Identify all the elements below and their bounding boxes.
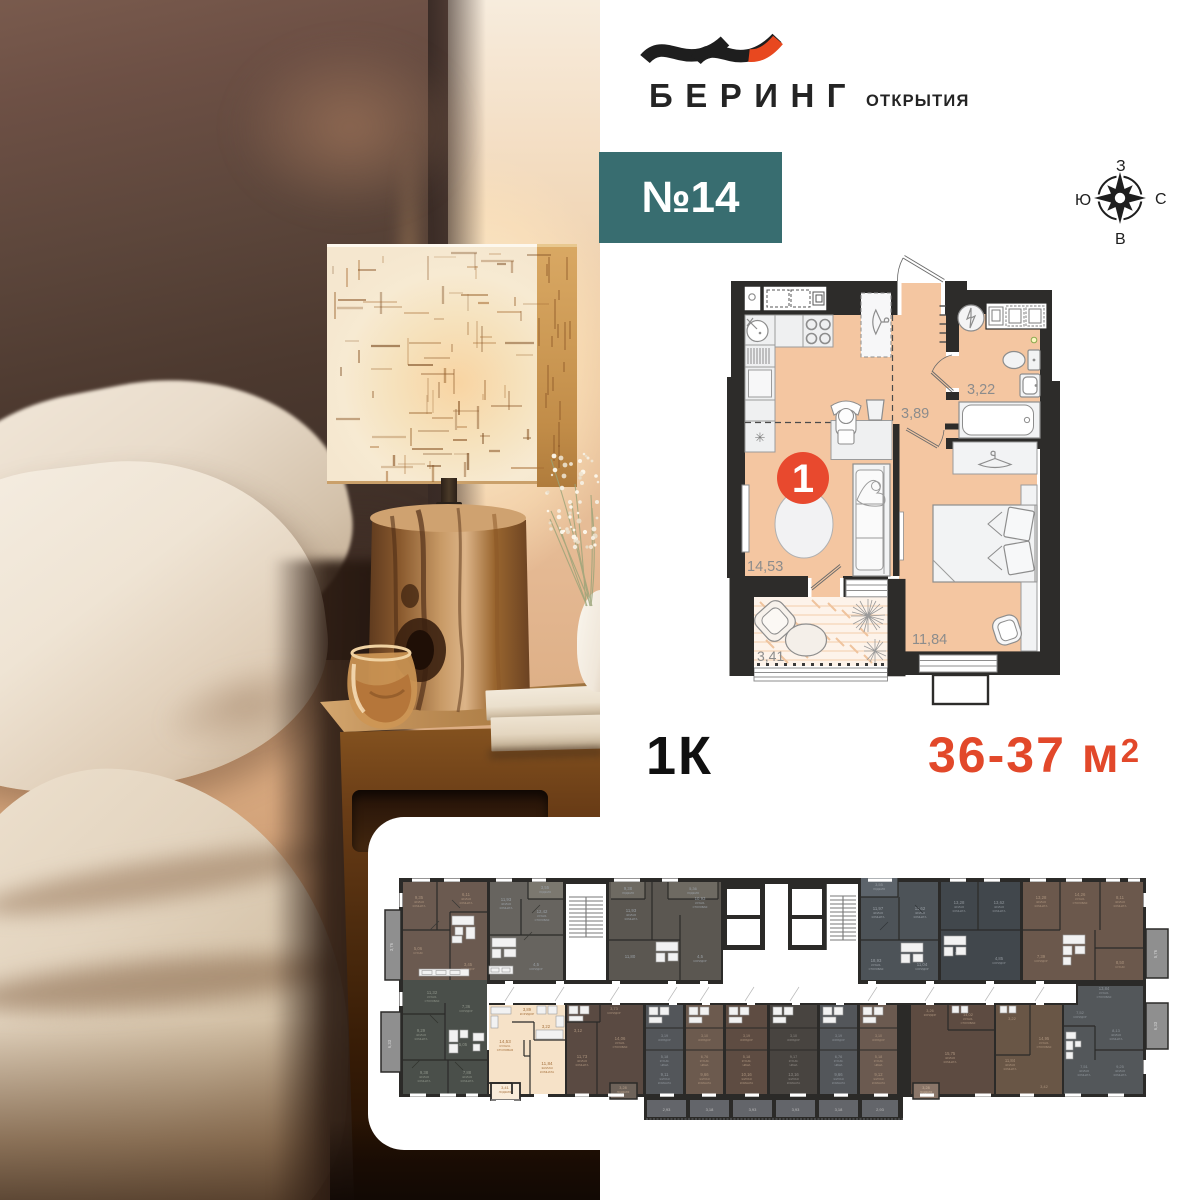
svg-text:КОРИДОР: КОРИДОР — [872, 1038, 885, 1042]
svg-text:КОМНАТА: КОМНАТА — [413, 904, 426, 908]
svg-text:5,06: 5,06 — [414, 946, 423, 951]
svg-text:НИША: НИША — [701, 1063, 709, 1067]
svg-text:ЖИЛАЯ: ЖИЛАЯ — [577, 1059, 587, 1063]
svg-text:5,76: 5,76 — [1153, 949, 1158, 958]
svg-text:14,26: 14,26 — [1075, 892, 1086, 897]
svg-text:ЖИЛАЯ: ЖИЛАЯ — [954, 905, 964, 909]
svg-text:ЖИЛАЯ: ЖИЛАЯ — [873, 911, 883, 915]
svg-text:5,05: 5,05 — [459, 1042, 468, 1047]
svg-text:КОМНАТА: КОМНАТА — [461, 1079, 474, 1083]
svg-text:14,06: 14,06 — [615, 1036, 626, 1041]
svg-text:КУХНЯ-: КУХНЯ- — [537, 914, 547, 918]
svg-text:КОМНАТА: КОМНАТА — [418, 1079, 431, 1083]
svg-text:9,29: 9,29 — [417, 1028, 426, 1033]
svg-text:КУХНЯ-: КУХНЯ- — [660, 1059, 670, 1063]
svg-text:СТОЛОВАЯ: СТОЛОВАЯ — [961, 1021, 976, 1025]
svg-text:12,42: 12,42 — [537, 909, 548, 914]
svg-text:КОМНАТА: КОМНАТА — [953, 909, 966, 913]
svg-text:4,5: 4,5 — [533, 962, 540, 967]
svg-text:КОМНАТА: КОМНАТА — [1035, 904, 1048, 908]
svg-text:КУХНЯ-: КУХНЯ- — [963, 1017, 973, 1021]
svg-text:13,28: 13,28 — [954, 900, 965, 905]
svg-text:13,28: 13,28 — [1036, 895, 1047, 900]
svg-text:КОРИДОР: КОРИДОР — [459, 1009, 472, 1013]
svg-text:3,22: 3,22 — [542, 1024, 551, 1029]
svg-text:КОРИДОР: КОРИДОР — [787, 1038, 800, 1042]
svg-text:ЖИЛАЯ: ЖИЛАЯ — [1115, 900, 1125, 904]
svg-text:9,38: 9,38 — [624, 886, 633, 891]
svg-text:КОМНАТА: КОМНАТА — [698, 1081, 711, 1085]
svg-text:9,35: 9,35 — [415, 895, 424, 900]
svg-text:3,41: 3,41 — [757, 648, 784, 664]
svg-text:КОРИДОР: КОРИДОР — [607, 1011, 620, 1015]
svg-text:НИША: НИША — [743, 1063, 751, 1067]
svg-text:НИША: НИША — [661, 1063, 669, 1067]
svg-text:КОМНАТА: КОМНАТА — [914, 915, 927, 919]
svg-text:КУХНЯ-: КУХНЯ- — [742, 1059, 752, 1063]
svg-text:КОМНАТА: КОМНАТА — [1110, 1037, 1123, 1041]
svg-text:3,22: 3,22 — [1008, 1016, 1017, 1021]
svg-text:ЖИЛАЯ: ЖИЛАЯ — [626, 913, 636, 917]
svg-text:ЛОДЖИЯ: ЛОДЖИЯ — [687, 891, 699, 895]
svg-text:5,18: 5,18 — [743, 1055, 750, 1059]
svg-text:КОРИДОР: КОРИДОР — [832, 1038, 845, 1042]
svg-text:3,19: 3,19 — [835, 1034, 842, 1038]
svg-text:11,93: 11,93 — [626, 908, 637, 913]
svg-text:КОМНАТА: КОМНАТА — [872, 1081, 885, 1085]
svg-text:КУХНЯ-: КУХНЯ- — [615, 1041, 625, 1045]
svg-text:1: 1 — [792, 457, 814, 501]
svg-text:НИША: НИША — [875, 1063, 883, 1067]
svg-text:В: В — [1115, 231, 1126, 248]
svg-text:13,62: 13,62 — [994, 900, 1005, 905]
svg-text:КУХНЯ-: КУХНЯ- — [1039, 1041, 1049, 1045]
svg-text:КУХНЯ-: КУХНЯ- — [1075, 897, 1085, 901]
svg-text:7,51: 7,51 — [1080, 1064, 1089, 1069]
svg-text:КОМНАТА: КОМНАТА — [1114, 904, 1127, 908]
svg-text:14,53: 14,53 — [747, 559, 783, 575]
svg-text:КУХНЯ-: КУХНЯ- — [871, 963, 881, 967]
svg-text:СТОЛОВАЯ: СТОЛОВАЯ — [1097, 995, 1112, 999]
svg-text:СТОЛОВАЯ: СТОЛОВАЯ — [693, 905, 708, 909]
svg-text:6,33: 6,33 — [1153, 1021, 1158, 1030]
svg-text:7,52: 7,52 — [1076, 1010, 1085, 1015]
svg-text:ЛОДЖИЯ: ЛОДЖИЯ — [622, 891, 634, 895]
svg-text:КОМНАТА: КОМНАТА — [500, 906, 513, 910]
svg-text:5,18: 5,18 — [661, 1055, 668, 1059]
svg-text:КОРИДОР: КОРИДОР — [693, 959, 706, 963]
svg-text:КОРИДОР: КОРИДОР — [658, 1038, 671, 1042]
svg-text:КОРИДОР: КОРИДОР — [1034, 959, 1047, 963]
svg-text:КОМНАТА: КОМНАТА — [740, 1081, 753, 1085]
svg-text:ЖИЛАЯ: ЖИЛАЯ — [414, 900, 424, 904]
svg-text:6,11: 6,11 — [462, 892, 471, 897]
svg-text:КУХНЯ-: КУХНЯ- — [427, 995, 437, 999]
svg-text:КОМНАТА: КОМНАТА — [944, 1060, 957, 1064]
svg-text:СТОЛОВАЯ: СТОЛОВАЯ — [497, 1048, 513, 1052]
svg-text:ЖИЛАЯ: ЖИЛАЯ — [945, 1056, 955, 1060]
svg-text:КОМНАТА: КОМНАТА — [1004, 1067, 1017, 1071]
svg-text:КУХНЯ-: КУХНЯ- — [874, 1059, 884, 1063]
svg-text:ЖИЛАЯ: ЖИЛАЯ — [419, 1075, 429, 1079]
svg-text:6,76: 6,76 — [835, 1055, 842, 1059]
svg-text:ОТКРЫТИЯ: ОТКРЫТИЯ — [866, 92, 970, 110]
svg-text:КОМНАТА: КОМНАТА — [625, 917, 638, 921]
svg-text:СТОЛОВАЯ: СТОЛОВАЯ — [1037, 1045, 1052, 1049]
svg-text:КОРИДОР: КОРИДОР — [529, 967, 542, 971]
svg-text:7,36: 7,36 — [462, 1004, 471, 1009]
svg-text:СТОЛОВАЯ: СТОЛОВАЯ — [535, 918, 550, 922]
svg-text:8,50: 8,50 — [1116, 960, 1125, 965]
svg-text:10,93: 10,93 — [695, 896, 706, 901]
svg-text:3,12: 3,12 — [574, 1028, 583, 1033]
svg-text:3,89: 3,89 — [901, 406, 929, 422]
svg-text:4,5: 4,5 — [697, 954, 704, 959]
svg-text:✳: ✳ — [755, 430, 766, 445]
svg-text:7,88: 7,88 — [463, 1070, 472, 1075]
svg-text:КОМНАТА: КОМНАТА — [415, 1037, 428, 1041]
svg-text:З: З — [1116, 158, 1126, 175]
svg-text:9,25: 9,25 — [1116, 1064, 1125, 1069]
svg-text:3,19: 3,19 — [661, 1034, 668, 1038]
svg-text:ЖИЛАЯ: ЖИЛАЯ — [461, 897, 471, 901]
svg-text:15,75: 15,75 — [945, 1051, 956, 1056]
svg-text:5,36: 5,36 — [689, 886, 698, 891]
svg-text:13,84: 13,84 — [1099, 986, 1110, 991]
svg-text:НИША: НИША — [790, 1063, 798, 1067]
svg-text:4,85: 4,85 — [995, 956, 1004, 961]
svg-text:8,11: 8,11 — [1116, 895, 1125, 900]
svg-text:ЖИЛАЯ: ЖИЛАЯ — [1079, 1069, 1089, 1073]
svg-text:ЛОДЖИЯ: ЛОДЖИЯ — [617, 1090, 629, 1094]
svg-text:КОРИДОР: КОРИДОР — [520, 1012, 535, 1016]
svg-text:НИША: НИША — [835, 1063, 843, 1067]
svg-text:3,18: 3,18 — [706, 1107, 715, 1112]
svg-text:3,73: 3,73 — [610, 1006, 619, 1011]
svg-text:ЖИЛАЯ: ЖИЛАЯ — [1111, 1033, 1121, 1037]
svg-text:3,10: 3,10 — [790, 1034, 797, 1038]
svg-text:11,04: 11,04 — [917, 962, 928, 967]
svg-text:КОМНАТА: КОМНАТА — [540, 1070, 554, 1074]
svg-text:11,84: 11,84 — [912, 632, 947, 648]
svg-text:ЖИЛАЯ: ЖИЛАЯ — [1115, 1069, 1125, 1073]
svg-text:СТОЛОВАЯ: СТОЛОВАЯ — [1073, 901, 1088, 905]
svg-text:ЖИЛАЯ: ЖИЛАЯ — [1036, 900, 1046, 904]
svg-text:ЛОДЖИЯ: ЛОДЖИЯ — [873, 887, 885, 891]
svg-text:3,55: 3,55 — [541, 885, 550, 890]
svg-text:КУХНЯ-: КУХНЯ- — [1099, 991, 1109, 995]
svg-text:ЛОДЖИЯ: ЛОДЖИЯ — [539, 890, 551, 894]
svg-text:КУХНЯ: КУХНЯ — [414, 951, 423, 955]
svg-text:КОМНАТА: КОМНАТА — [1078, 1073, 1091, 1077]
svg-text:КОМНАТА: КОМНАТА — [658, 1081, 671, 1085]
svg-text:11,97: 11,97 — [873, 906, 884, 911]
svg-text:КОРИДОР: КОРИДОР — [698, 1038, 711, 1042]
svg-text:КОМНАТА: КОМНАТА — [460, 901, 473, 905]
svg-text:3,18: 3,18 — [835, 1107, 844, 1112]
svg-text:СТОЛОВАЯ: СТОЛОВАЯ — [425, 999, 440, 1003]
svg-text:КУХНЯ-: КУХНЯ- — [789, 1059, 799, 1063]
svg-text:3,45: 3,45 — [464, 962, 473, 967]
svg-text:КУХНЯ-: КУХНЯ- — [700, 1059, 710, 1063]
svg-text:КУХНЯ-: КУХНЯ- — [834, 1059, 844, 1063]
svg-text:3,10: 3,10 — [701, 1034, 708, 1038]
svg-text:6,33: 6,33 — [387, 1039, 392, 1048]
svg-text:3,55: 3,55 — [875, 882, 884, 887]
svg-text:КОМНАТА: КОМНАТА — [832, 1081, 845, 1085]
svg-text:3,93: 3,93 — [749, 1107, 758, 1112]
svg-text:ЛОДЖИЯ: ЛОДЖИЯ — [499, 1090, 511, 1094]
svg-text:11,32: 11,32 — [427, 990, 438, 995]
svg-text:11,73: 11,73 — [577, 1054, 588, 1059]
svg-text:6,76: 6,76 — [701, 1055, 708, 1059]
svg-text:2,93: 2,93 — [876, 1107, 885, 1112]
svg-text:КОМНАТА: КОМНАТА — [787, 1081, 800, 1085]
svg-text:ЖИЛАЯ: ЖИЛАЯ — [462, 1075, 472, 1079]
svg-text:3,19: 3,19 — [743, 1034, 750, 1038]
svg-text:3,42: 3,42 — [1040, 1084, 1049, 1089]
svg-text:КОМНАТА: КОМНАТА — [1114, 1073, 1127, 1077]
svg-text:3,26: 3,26 — [926, 1009, 933, 1013]
svg-text:КУХНЯ-: КУХНЯ- — [695, 901, 705, 905]
svg-text:3,22: 3,22 — [967, 382, 995, 398]
svg-text:КОРИДОР: КОРИДОР — [924, 1013, 937, 1017]
svg-text:СТОЛОВАЯ: СТОЛОВАЯ — [613, 1045, 628, 1049]
svg-text:СТОЛОВАЯ: СТОЛОВАЯ — [869, 967, 884, 971]
svg-text:3,76: 3,76 — [389, 942, 394, 951]
svg-text:КОРИДОР: КОРИДОР — [992, 961, 1005, 965]
svg-text:8,13: 8,13 — [1112, 1028, 1121, 1033]
svg-text:ЛОДЖИЯ: ЛОДЖИЯ — [920, 1090, 932, 1094]
svg-text:ЖИЛАЯ: ЖИЛАЯ — [994, 905, 1004, 909]
svg-text:ЖИЛАЯ: ЖИЛАЯ — [1005, 1063, 1015, 1067]
svg-text:БЕРИНГ: БЕРИНГ — [649, 77, 858, 114]
svg-text:18,93: 18,93 — [871, 958, 882, 963]
svg-text:11,84: 11,84 — [1005, 1058, 1016, 1063]
svg-text:3,10: 3,10 — [875, 1034, 882, 1038]
svg-text:КОРИДОР: КОРИДОР — [915, 967, 928, 971]
svg-text:КУХНЯ: КУХНЯ — [1116, 965, 1125, 969]
svg-text:С: С — [1155, 191, 1167, 208]
svg-text:Ю: Ю — [1075, 192, 1091, 209]
svg-text:ЖИЛАЯ: ЖИЛАЯ — [501, 902, 511, 906]
svg-text:КОМНАТА: КОМНАТА — [993, 909, 1006, 913]
svg-text:2,93: 2,93 — [663, 1107, 672, 1112]
svg-text:7,39: 7,39 — [1037, 954, 1046, 959]
svg-text:КОМНАТА: КОМНАТА — [576, 1063, 589, 1067]
svg-text:ЖИЛАЯ: ЖИЛАЯ — [915, 911, 925, 915]
svg-text:5,18: 5,18 — [875, 1055, 882, 1059]
svg-text:КОРИДОР: КОРИДОР — [740, 1038, 753, 1042]
svg-text:11,80: 11,80 — [625, 954, 636, 959]
svg-text:9,38: 9,38 — [420, 1070, 429, 1075]
svg-text:КОМНАТА: КОМНАТА — [872, 915, 885, 919]
svg-text:9,17: 9,17 — [790, 1055, 797, 1059]
svg-text:ЖИЛАЯ: ЖИЛАЯ — [416, 1033, 426, 1037]
svg-text:11,93: 11,93 — [501, 897, 512, 902]
svg-text:КОРИДОР: КОРИДОР — [1073, 1015, 1086, 1019]
svg-text:14,95: 14,95 — [1039, 1036, 1050, 1041]
svg-text:3,93: 3,93 — [792, 1107, 801, 1112]
